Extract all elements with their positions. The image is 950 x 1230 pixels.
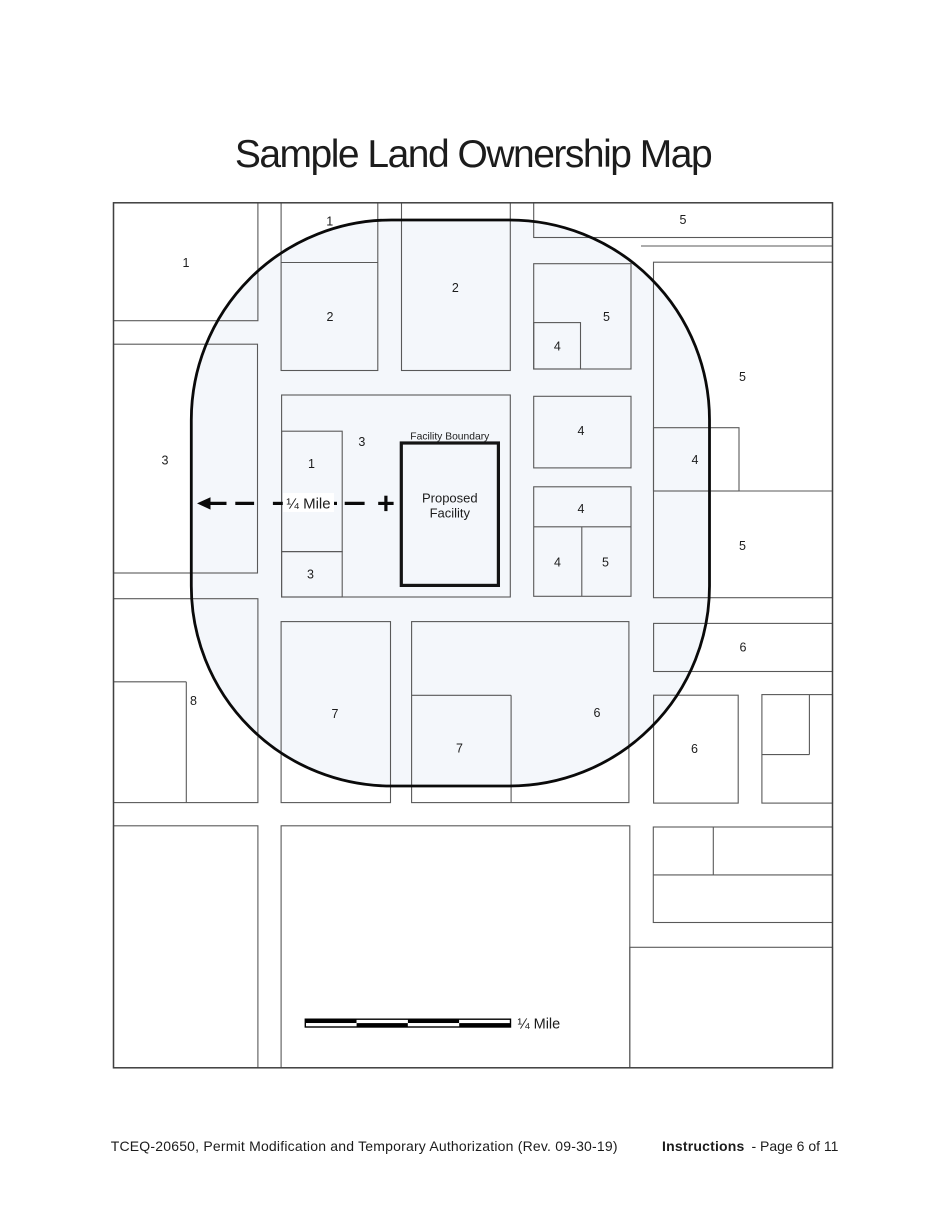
svg-text:Facility Boundary: Facility Boundary xyxy=(410,432,490,443)
svg-text:3: 3 xyxy=(307,568,314,582)
svg-text:1: 1 xyxy=(183,256,190,270)
svg-text:5: 5 xyxy=(603,310,610,324)
svg-text:7: 7 xyxy=(456,742,463,756)
svg-text:Instructions: Instructions xyxy=(662,1138,745,1154)
svg-text:Facility: Facility xyxy=(430,505,471,520)
svg-text:4: 4 xyxy=(692,453,699,467)
svg-text:¼ Mile: ¼ Mile xyxy=(518,1017,561,1033)
svg-text:2: 2 xyxy=(327,310,334,324)
svg-text:2: 2 xyxy=(452,281,459,295)
svg-text:3: 3 xyxy=(358,435,365,449)
svg-text:6: 6 xyxy=(594,706,601,720)
svg-text:4: 4 xyxy=(554,556,561,570)
svg-text:1: 1 xyxy=(308,457,315,471)
svg-text:4: 4 xyxy=(554,340,561,354)
svg-text:5: 5 xyxy=(680,213,687,227)
svg-text:4: 4 xyxy=(578,502,585,516)
svg-text:TCEQ-20650, Permit Modificatio: TCEQ-20650, Permit Modification and Temp… xyxy=(111,1138,618,1154)
svg-text:Proposed: Proposed xyxy=(422,491,478,506)
svg-text:- Page 6 of 11: - Page 6 of 11 xyxy=(752,1138,839,1154)
svg-text:5: 5 xyxy=(739,370,746,384)
svg-text:¼ Mile: ¼ Mile xyxy=(286,495,330,512)
svg-text:5: 5 xyxy=(602,556,609,570)
svg-text:8: 8 xyxy=(190,694,197,708)
svg-text:Sample Land Ownership Map: Sample Land Ownership Map xyxy=(235,133,712,176)
svg-text:7: 7 xyxy=(332,707,339,721)
svg-text:1: 1 xyxy=(326,214,333,228)
svg-text:6: 6 xyxy=(691,742,698,756)
svg-text:5: 5 xyxy=(739,539,746,553)
svg-text:6: 6 xyxy=(740,641,747,655)
svg-text:4: 4 xyxy=(578,424,585,438)
svg-text:3: 3 xyxy=(162,454,169,468)
